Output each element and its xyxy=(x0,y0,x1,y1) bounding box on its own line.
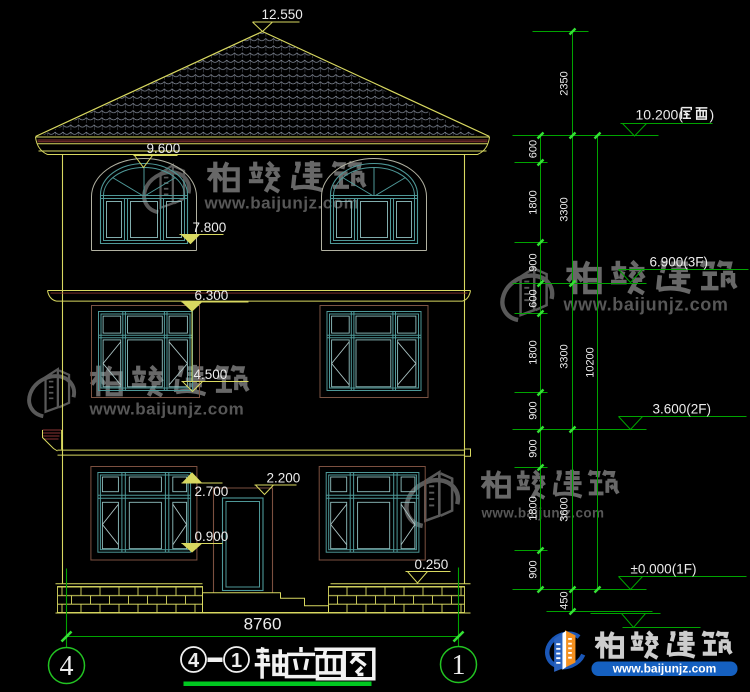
svg-text:www.baijunjz.com: www.baijunjz.com xyxy=(481,506,605,521)
svg-text:900: 900 xyxy=(528,439,540,457)
svg-text:7.800: 7.800 xyxy=(193,220,227,235)
svg-text:6.900(3F): 6.900(3F) xyxy=(650,255,709,270)
svg-text:10200: 10200 xyxy=(585,347,597,378)
svg-text:900: 900 xyxy=(528,253,540,271)
svg-text:900: 900 xyxy=(528,560,540,578)
svg-text:3.600(2F): 3.600(2F) xyxy=(653,402,712,417)
svg-text:1: 1 xyxy=(452,650,466,681)
svg-text:12.550: 12.550 xyxy=(262,7,303,22)
svg-text:1800: 1800 xyxy=(528,190,540,214)
svg-text:2.700: 2.700 xyxy=(195,484,229,499)
svg-text:600: 600 xyxy=(528,140,540,158)
svg-text:): ) xyxy=(710,107,715,123)
svg-text:1800: 1800 xyxy=(528,496,540,520)
svg-text:4.500: 4.500 xyxy=(194,367,228,382)
svg-text:600: 600 xyxy=(528,289,540,307)
svg-text:2350: 2350 xyxy=(559,71,571,95)
svg-text:450: 450 xyxy=(559,591,571,609)
svg-text:3600: 3600 xyxy=(559,497,571,521)
svg-text:3300: 3300 xyxy=(559,197,571,221)
svg-text:www.baijunjz.com: www.baijunjz.com xyxy=(204,194,360,213)
svg-text:±0.000(1F): ±0.000(1F) xyxy=(631,562,697,577)
svg-text:2.200: 2.200 xyxy=(267,471,301,486)
svg-text:1800: 1800 xyxy=(528,340,540,364)
svg-text:www.baijunjz.com: www.baijunjz.com xyxy=(563,295,729,315)
svg-text:www.baijunjz.com: www.baijunjz.com xyxy=(612,662,717,676)
svg-text:1: 1 xyxy=(231,650,242,672)
svg-text:www.baijunjz.com: www.baijunjz.com xyxy=(89,400,245,419)
svg-text:8760: 8760 xyxy=(244,615,282,634)
svg-text:4: 4 xyxy=(188,650,200,672)
svg-text:6.300: 6.300 xyxy=(195,288,229,303)
svg-text:9.600: 9.600 xyxy=(147,141,181,156)
svg-text:0.250: 0.250 xyxy=(415,557,449,572)
svg-text:900: 900 xyxy=(528,401,540,419)
svg-text:3300: 3300 xyxy=(559,344,571,368)
svg-text:4: 4 xyxy=(60,651,74,682)
svg-text:0.900: 0.900 xyxy=(195,529,229,544)
svg-text:10.200(: 10.200( xyxy=(636,107,684,123)
